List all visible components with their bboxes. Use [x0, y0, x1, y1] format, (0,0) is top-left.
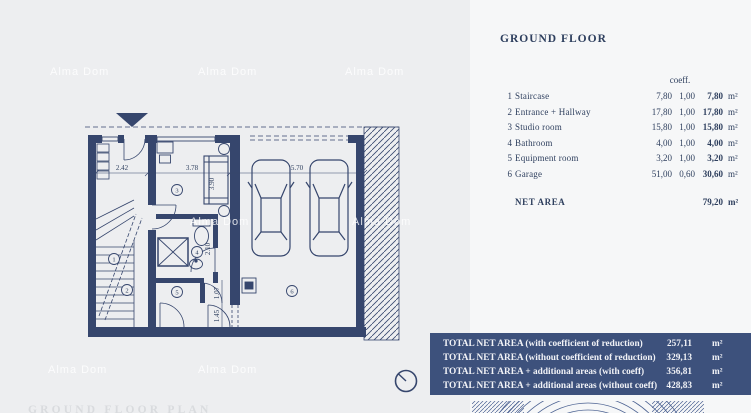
room-area: 4,00 — [610, 138, 672, 148]
totals-row: TOTAL NET AREA (without coefficient of r… — [430, 351, 751, 365]
totals-row: TOTAL NET AREA (with coefficient of redu… — [430, 337, 751, 351]
total-label: TOTAL NET AREA (with coefficient of redu… — [443, 337, 643, 351]
dim-label-h1: 2.42 — [116, 164, 129, 172]
row-number: 2 — [500, 107, 512, 117]
unit-label: m² — [728, 138, 750, 148]
dim-label-v3: 1.07 — [213, 286, 221, 299]
total-value: 428,83 — [620, 379, 692, 393]
room-coeff: 1,00 — [674, 122, 695, 132]
row-number: 1 — [500, 91, 512, 101]
interior-walls — [148, 143, 218, 327]
unit-label: m² — [728, 197, 750, 207]
room-name: Studio room — [515, 122, 562, 132]
row-number: 6 — [500, 169, 512, 179]
toilet-icon — [193, 219, 210, 246]
total-value: 356,81 — [620, 365, 692, 379]
total-label: TOTAL NET AREA + additional areas (with … — [443, 365, 644, 379]
room-area: 17,80 — [610, 107, 672, 117]
unit-label: m² — [712, 379, 723, 393]
room-result: 4,00 — [697, 138, 723, 148]
room-coeff: 1,00 — [674, 91, 695, 101]
table-row: 2 Entrance + Hallway 17,80 1,00 17,80 m² — [470, 107, 751, 120]
outer-walls — [88, 135, 366, 337]
net-area-label: NET AREA — [515, 197, 565, 207]
room-result: 7,80 — [697, 91, 723, 101]
room-marker-3: 3 — [175, 188, 178, 195]
table-row: 4 Bathroom 4,00 1,00 4,00 m² — [470, 138, 751, 151]
room-coeff: 1,00 — [674, 107, 695, 117]
plan-caption: GROUND FLOOR PLAN — [28, 404, 211, 413]
floor-plan-sheet: 2.42 3.78 5.70 3.90 2.10 1.07 1.45 1 2 3… — [0, 0, 751, 413]
room-result: 15,80 — [697, 122, 723, 132]
net-area-row: NET AREA 79,20 m² — [470, 197, 751, 210]
unit-label: m² — [728, 91, 750, 101]
unit-label: m² — [728, 169, 750, 179]
dim-label-v4: 1.45 — [213, 309, 221, 322]
room-marker-2: 2 — [125, 288, 128, 295]
room-marker-1: 1 — [112, 257, 115, 264]
room-area: 15,80 — [610, 122, 672, 132]
clock-icon — [396, 371, 417, 392]
unit-label: m² — [712, 365, 723, 379]
boiler-box-icon — [242, 278, 256, 293]
entrance-arrow-icon — [116, 113, 148, 127]
table-row: 6 Garage 51,00 0,60 30,60 m² — [470, 169, 751, 182]
dim-label-v2: 2.10 — [204, 242, 212, 255]
room-name: Garage — [515, 169, 542, 179]
room-result: 3,20 — [697, 153, 723, 163]
sink-icon — [190, 259, 203, 269]
floor-plan: 2.42 3.78 5.70 3.90 2.10 1.07 1.45 1 2 3… — [85, 113, 399, 340]
table-row: 5 Equipment room 3,20 1,00 3,20 m² — [470, 153, 751, 166]
room-name: Entrance + Hallway — [515, 107, 591, 117]
row-number: 4 — [500, 138, 512, 148]
unit-label: m² — [728, 122, 750, 132]
totals-row: TOTAL NET AREA + additional areas (witho… — [430, 379, 751, 393]
total-value: 257,11 — [620, 337, 692, 351]
dim-label-v1: 3.90 — [208, 177, 216, 190]
room-marker-5: 5 — [175, 290, 178, 297]
entry-closet — [97, 144, 109, 179]
unit-label: m² — [712, 337, 723, 351]
room-result: 30,60 — [697, 169, 723, 179]
room-result: 17,80 — [697, 107, 723, 117]
net-area-value: 79,20 — [697, 197, 723, 207]
table-row: 1 Staircase 7,80 1,00 7,80 m² — [470, 91, 751, 104]
dim-label-h3: 5.70 — [291, 164, 304, 172]
elevator-shaft — [158, 238, 188, 266]
room-coeff: 1,00 — [674, 138, 695, 148]
totals-row: TOTAL NET AREA + additional areas (with … — [430, 365, 751, 379]
total-value: 329,13 — [620, 351, 692, 365]
room-coeff: 1,00 — [674, 153, 695, 163]
unit-label: m² — [728, 107, 750, 117]
car-icon — [248, 160, 294, 256]
room-name: Bathroom — [515, 138, 553, 148]
row-number: 3 — [500, 122, 512, 132]
hatched-wall-strip — [364, 127, 399, 340]
table-title: GROUND FLOOR — [500, 33, 607, 45]
room-name: Staircase — [515, 91, 549, 101]
coeff-column-header: coeff. — [665, 75, 695, 85]
dim-label-h2: 3.78 — [186, 164, 199, 172]
table-row: 3 Studio room 15,80 1,00 15,80 m² — [470, 122, 751, 135]
totals-box: TOTAL NET AREA (with coefficient of redu… — [430, 333, 751, 395]
room-name: Equipment room — [515, 153, 579, 163]
room-area: 7,80 — [610, 91, 672, 101]
unit-label: m² — [712, 351, 723, 365]
room-area: 3,20 — [610, 153, 672, 163]
row-number: 5 — [500, 153, 512, 163]
staircase — [96, 200, 142, 327]
room-coeff: 0,60 — [674, 169, 695, 179]
car-icon — [306, 160, 352, 256]
desk-and-chair — [157, 142, 173, 163]
room-area: 51,00 — [610, 169, 672, 179]
unit-label: m² — [728, 153, 750, 163]
